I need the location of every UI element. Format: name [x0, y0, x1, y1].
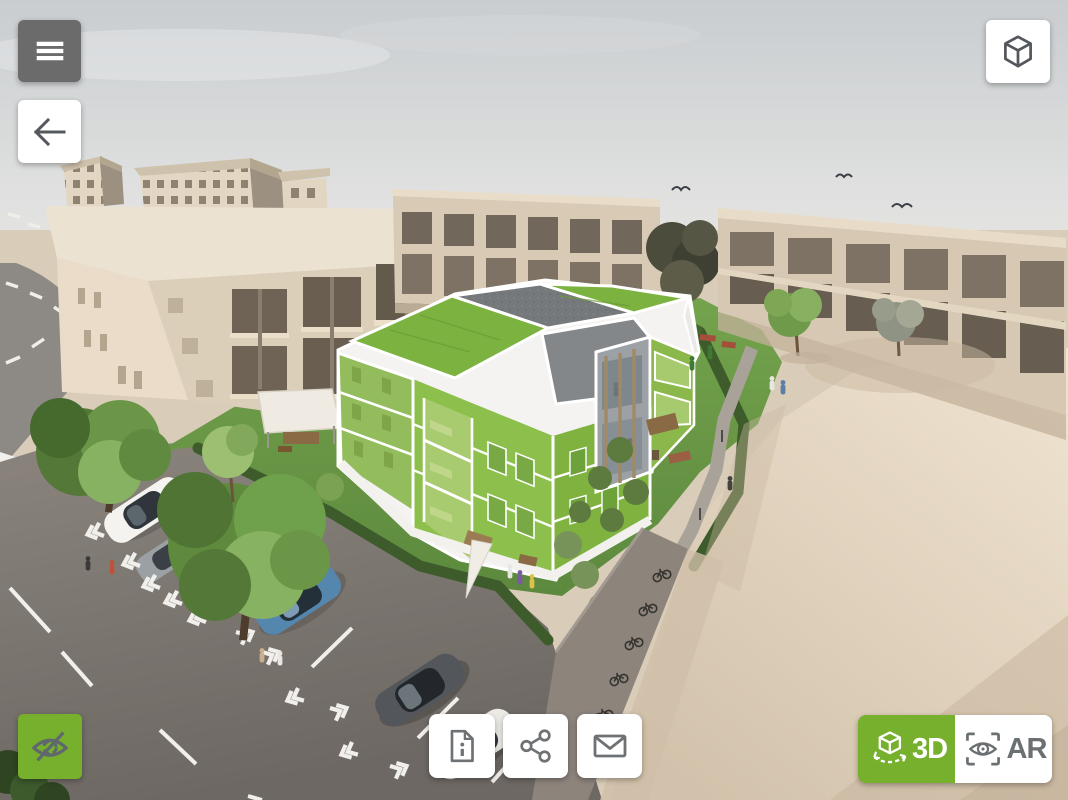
cube-rotate-icon [866, 726, 910, 772]
back-button[interactable] [18, 100, 81, 163]
hamburger-menu-icon [31, 32, 69, 70]
mode-3d-button[interactable]: 3D [858, 715, 955, 783]
contact-button[interactable] [577, 714, 642, 778]
document-info-icon [441, 725, 483, 767]
eye-slash-icon [27, 724, 73, 770]
menu-button[interactable] [18, 20, 81, 82]
hide-overlay-button[interactable] [18, 714, 82, 779]
ar-eye-icon [961, 726, 1005, 772]
share-button[interactable] [503, 714, 568, 778]
cube-icon [997, 31, 1039, 73]
view-mode-switcher: 3D AR [858, 715, 1052, 783]
mode-3d-label: 3D [912, 733, 947, 766]
viewer-stage: 3D AR [0, 0, 1068, 800]
arrow-left-icon [29, 111, 71, 153]
envelope-icon [588, 724, 632, 768]
scene-3d-viewport[interactable] [0, 0, 1068, 800]
mode-ar-button[interactable]: AR [955, 715, 1052, 783]
share-nodes-icon [515, 725, 557, 767]
info-button[interactable] [429, 714, 495, 778]
model-view-button[interactable] [986, 20, 1050, 83]
mode-ar-label: AR [1007, 733, 1047, 766]
